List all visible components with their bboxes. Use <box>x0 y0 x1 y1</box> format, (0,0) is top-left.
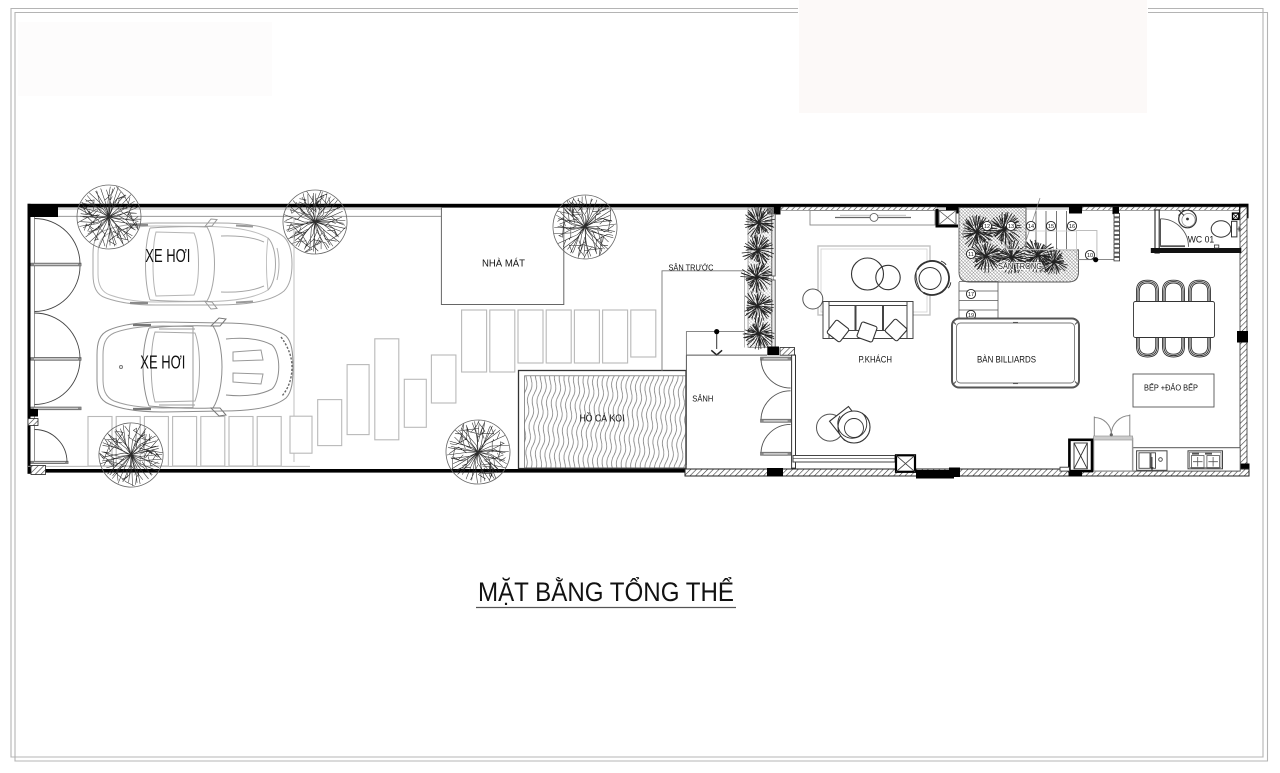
svg-text:16: 16 <box>1069 224 1075 230</box>
svg-text:12: 12 <box>984 224 990 230</box>
svg-text:SÂN TRƯỚC: SÂN TRƯỚC <box>669 262 714 272</box>
svg-text:13: 13 <box>1008 224 1014 230</box>
svg-text:SÂN TRONG: SÂN TRONG <box>998 261 1042 271</box>
svg-text:11: 11 <box>968 252 974 258</box>
svg-text:WC 01: WC 01 <box>1188 235 1215 246</box>
svg-text:HỒ CÁ KOI: HỒ CÁ KOI <box>580 412 625 425</box>
svg-text:P.KHÁCH: P.KHÁCH <box>858 355 892 365</box>
svg-text:XE HƠI: XE HƠI <box>145 245 190 266</box>
svg-text:MẶT BẰNG TỔNG THỂ: MẶT BẰNG TỔNG THỂ <box>478 576 734 607</box>
svg-text:10: 10 <box>1087 253 1093 259</box>
svg-text:XE HƠI: XE HƠI <box>140 352 185 373</box>
svg-text:BẾP +ĐẢO BẾP: BẾP +ĐẢO BẾP <box>1144 382 1198 393</box>
svg-text:BÀN BILLIARDS: BÀN BILLIARDS <box>977 355 1036 365</box>
svg-text:15: 15 <box>1048 224 1054 230</box>
svg-text:17: 17 <box>968 292 974 298</box>
svg-text:14: 14 <box>1028 224 1034 230</box>
svg-text:NHÀ MÁT: NHÀ MÁT <box>482 257 525 270</box>
svg-text:SẢNH: SẢNH <box>692 393 713 404</box>
